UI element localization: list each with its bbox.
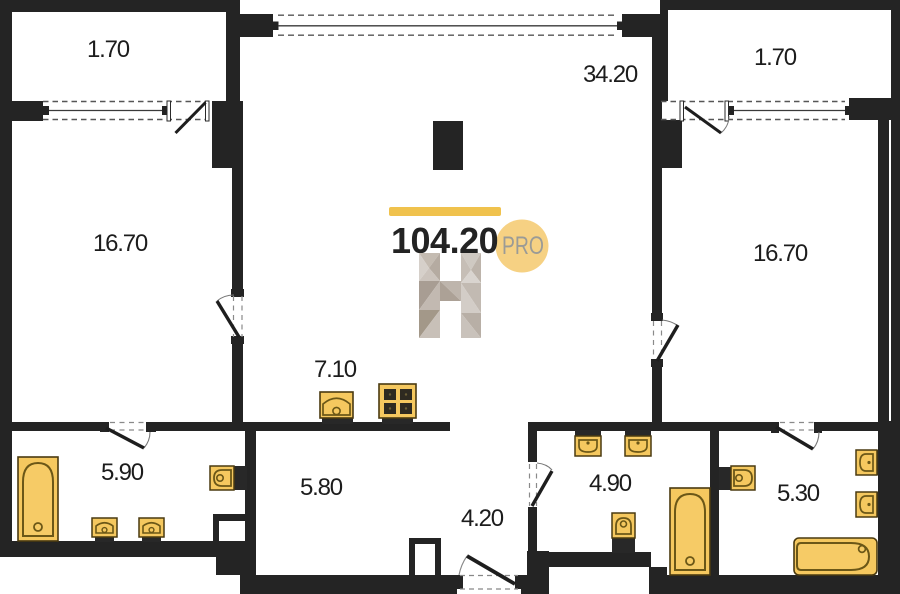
svg-text:5.30: 5.30 — [777, 480, 820, 507]
svg-text:PRO: PRO — [502, 232, 544, 260]
svg-text:1.70: 1.70 — [754, 44, 797, 71]
svg-text:16.70: 16.70 — [93, 230, 148, 257]
svg-text:104.20: 104.20 — [391, 220, 498, 261]
svg-text:5.90: 5.90 — [101, 459, 144, 486]
svg-text:5.80: 5.80 — [300, 474, 343, 501]
svg-text:34.20: 34.20 — [583, 61, 638, 88]
svg-text:1.70: 1.70 — [87, 36, 130, 63]
svg-text:4.90: 4.90 — [589, 470, 632, 497]
svg-text:7.10: 7.10 — [314, 356, 357, 383]
svg-text:16.70: 16.70 — [753, 240, 808, 267]
svg-text:4.20: 4.20 — [461, 505, 504, 532]
